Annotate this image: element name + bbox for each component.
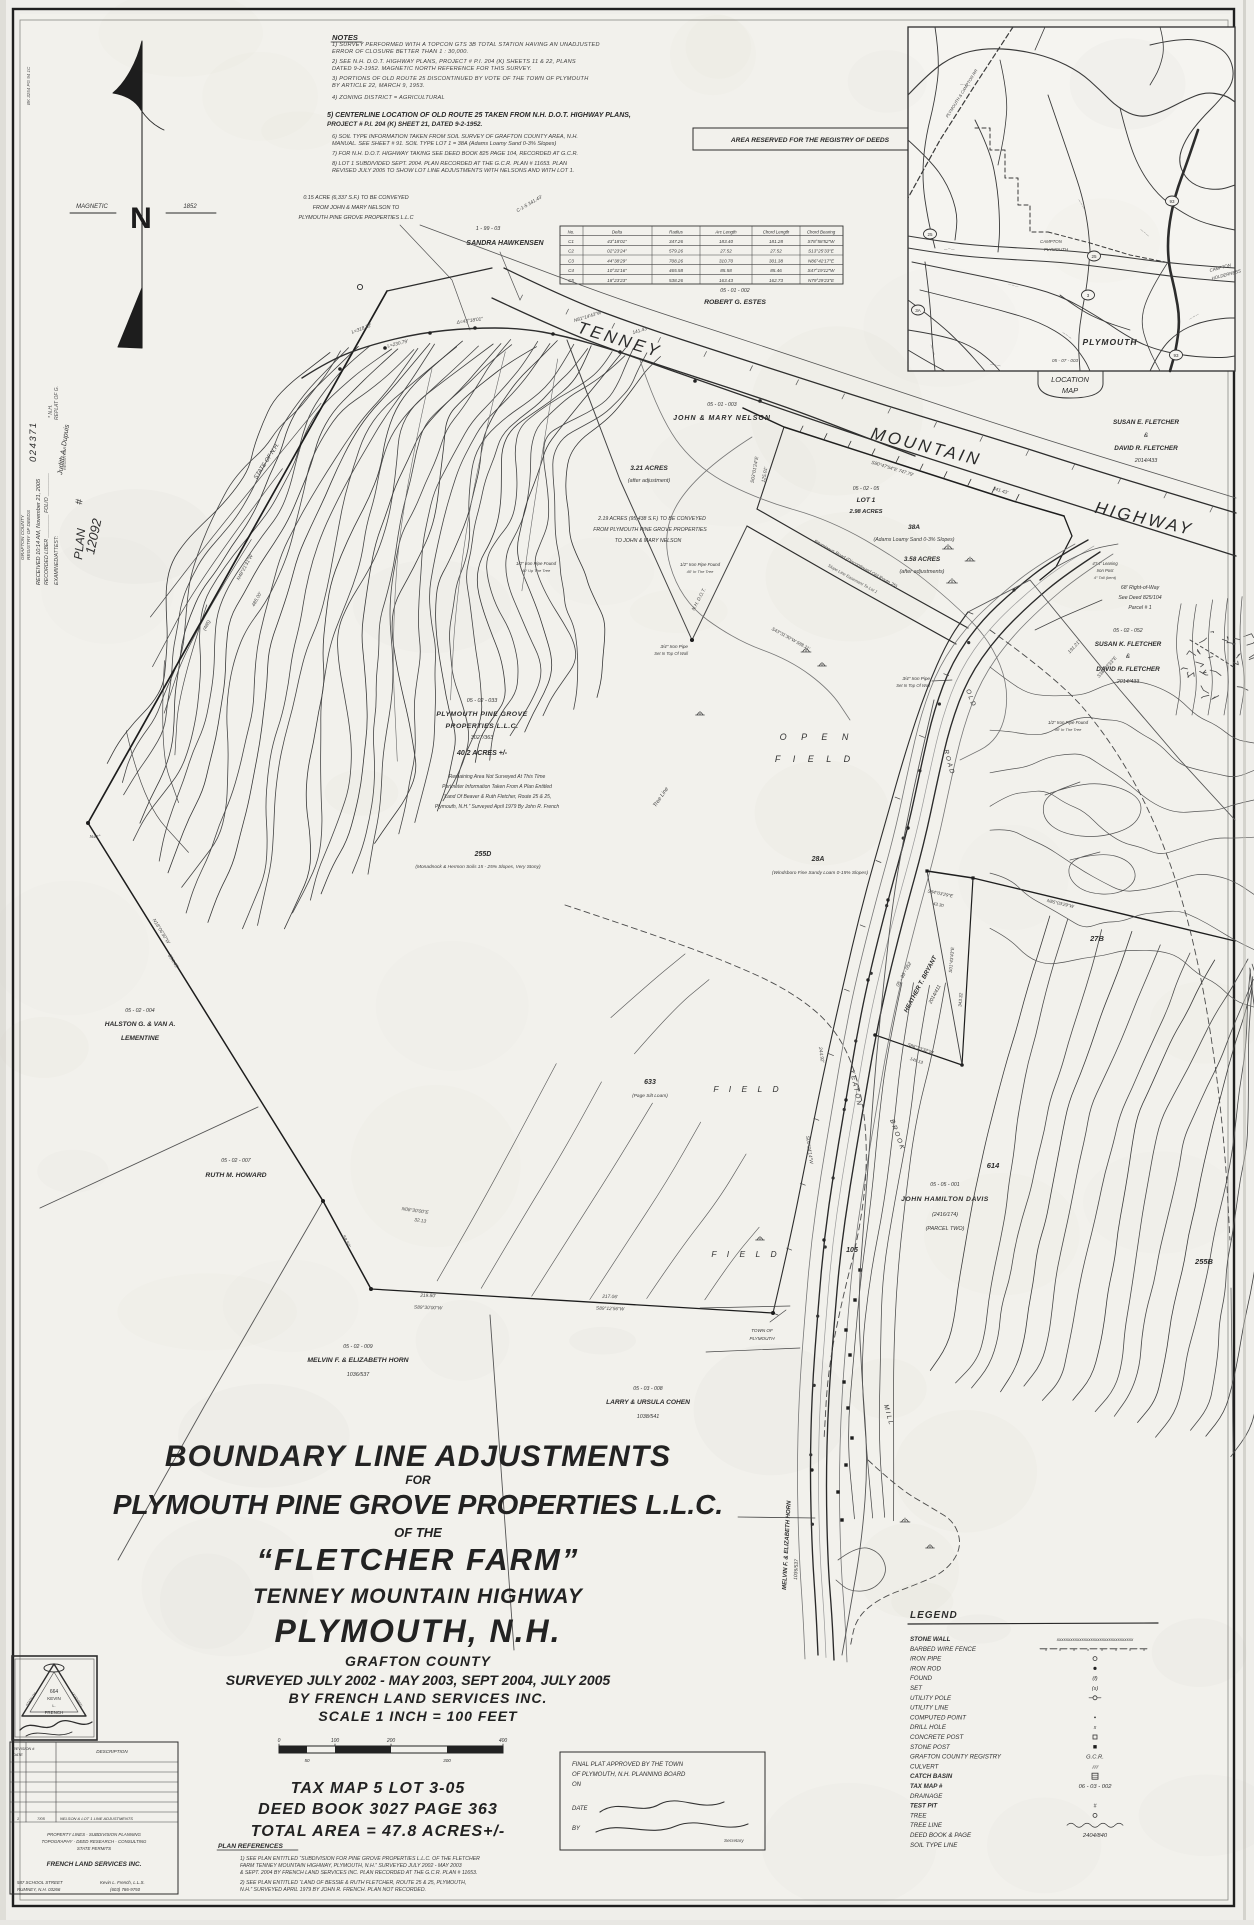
svg-text:DAVID R. FLETCHER: DAVID R. FLETCHER — [1114, 445, 1178, 452]
svg-text:(Windsboro Fine Sandy Loam 0-1: (Windsboro Fine Sandy Loam 0-15% Slopes) — [772, 870, 869, 876]
svg-text:Radius: Radius — [669, 230, 683, 235]
svg-text:3/4″ Iron Pipe: 3/4″ Iron Pipe — [660, 644, 688, 649]
svg-text:8) LOT 1 SUBDIVIDED SEPT. 2004: 8) LOT 1 SUBDIVIDED SEPT. 2004. PLAN REC… — [332, 161, 568, 167]
svg-text:05 - 07 - 003: 05 - 07 - 003 — [1052, 358, 1078, 363]
svg-text:&: & — [1126, 653, 1130, 660]
svg-text:301.38: 301.38 — [769, 258, 783, 263]
svg-text:DATE: DATE — [13, 1753, 23, 1757]
svg-text:GRAFTON COUNTY: GRAFTON COUNTY — [20, 514, 26, 560]
svg-text:SANDRA HAWKENSEN: SANDRA HAWKENSEN — [466, 240, 544, 247]
svg-text:3027/363: 3027/363 — [471, 735, 493, 741]
svg-text:05 - 01 - 002: 05 - 01 - 002 — [720, 288, 750, 294]
svg-text:REVISION #: REVISION # — [13, 1747, 35, 1751]
svg-text:3) PORTIONS OF OLD ROUTE 25 DI: 3) PORTIONS OF OLD ROUTE 25 DISCONTINUED… — [332, 76, 589, 82]
svg-text:L.: L. — [52, 1703, 55, 1708]
svg-text:7/05: 7/05 — [37, 1816, 46, 1821]
svg-text:N.H.” SURVEYED APRIL 1979 BY J: N.H.” SURVEYED APRIL 1979 BY JOHN R. FRE… — [240, 1887, 426, 1893]
svg-text:TOPOGRAPHY · DEED RESEARCH · C: TOPOGRAPHY · DEED RESEARCH · CONSULTING — [42, 1839, 147, 1844]
svg-text:219.80′: 219.80′ — [419, 1293, 437, 1300]
svg-text:LARRY & URSULA COHEN: LARRY & URSULA COHEN — [606, 1399, 690, 1406]
svg-text:Plymouth, N.H.” Surveyed April: Plymouth, N.H.” Surveyed April 1979 By J… — [435, 804, 560, 810]
svg-text:0.15 ACRE (6,337 S.F.) TO BE C: 0.15 ACRE (6,337 S.F.) TO BE CONVEYED — [303, 195, 408, 201]
svg-text:RUTH M. HOWARD: RUTH M. HOWARD — [205, 1172, 266, 1179]
svg-text:1/2″ Iron Pipe Found: 1/2″ Iron Pipe Found — [680, 562, 721, 567]
svg-text:C2: C2 — [568, 249, 574, 254]
svg-text:1: 1 — [17, 1816, 19, 1821]
svg-text:SURVEYED JULY 2002 - MAY 2003,: SURVEYED JULY 2002 - MAY 2003, SEPT 2004… — [226, 1672, 611, 1688]
svg-text:REPLAT OF G.: REPLAT OF G. — [54, 386, 60, 420]
svg-text:Chord Length: Chord Length — [763, 230, 790, 235]
svg-text:BY ARTICLE 22, MARCH 9, 1953.: BY ARTICLE 22, MARCH 9, 1953. — [332, 83, 425, 89]
svg-text:FRENCH LAND SERVICES INC.: FRENCH LAND SERVICES INC. — [47, 1861, 142, 1868]
svg-text:1036/537: 1036/537 — [347, 1372, 370, 1378]
svg-text:PLYMOUTH PINE GROVE: PLYMOUTH PINE GROVE — [436, 711, 527, 718]
svg-text:FOUND: FOUND — [910, 1675, 933, 1682]
svg-text:3/4″ Iron Pipe: 3/4″ Iron Pipe — [902, 676, 930, 681]
svg-text:PLYMOUTH: PLYMOUTH — [749, 1336, 775, 1341]
svg-text:STONE POST: STONE POST — [910, 1744, 951, 1751]
svg-text:05 - 02 - 009: 05 - 02 - 009 — [343, 1344, 373, 1350]
svg-text:GRAFTON COUNTY: GRAFTON COUNTY — [345, 1653, 492, 1669]
svg-text:DESCRIPTION: DESCRIPTION — [96, 1749, 128, 1754]
svg-text:614: 614 — [987, 1161, 1000, 1170]
svg-text:PLYMOUTH, N.H.: PLYMOUTH, N.H. — [275, 1613, 562, 1649]
svg-text:CONCRETE POST: CONCRETE POST — [910, 1734, 965, 1741]
svg-text:PLYMOUTH PINE GROVE PROPERTIES: PLYMOUTH PINE GROVE PROPERTIES L.L.C. — [113, 1489, 723, 1520]
svg-text:1/2″ Iron Pipe Found: 1/2″ Iron Pipe Found — [1048, 720, 1089, 725]
svg-text:300: 300 — [443, 1758, 451, 1763]
svg-text:DATED 9-2-1952. MAGNETIC NORTH: DATED 9-2-1952. MAGNETIC NORTH REFERENCE… — [332, 66, 532, 72]
svg-text:200: 200 — [386, 1738, 396, 1744]
svg-text:F I E L D: F I E L D — [711, 1249, 780, 1259]
svg-text:— ─ —: — ─ — — [943, 247, 955, 251]
svg-text:024371: 024371 — [28, 421, 39, 462]
svg-text:FROM JOHN & MARY NELSON TO: FROM JOHN & MARY NELSON TO — [313, 205, 400, 211]
svg-text:REVISED JULY 2005 TO SHOW LOT: REVISED JULY 2005 TO SHOW LOT LINE ADJUS… — [332, 168, 574, 174]
svg-text:FARM TENNEY MOUNTAIN HIGHWAY,: FARM TENNEY MOUNTAIN HIGHWAY, PLYMOUTH, … — [240, 1863, 462, 1869]
svg-text:664: 664 — [50, 1689, 59, 1695]
svg-text:HALSTON G. & VAN A.: HALSTON G. & VAN A. — [105, 1021, 176, 1028]
svg-text:RECEIVED 10:14 AM, November 21: RECEIVED 10:14 AM, November 21, 2005 — [36, 478, 42, 585]
svg-text:6) SOIL TYPE INFORMATION TAKEN: 6) SOIL TYPE INFORMATION TAKEN FROM SOIL… — [332, 134, 578, 140]
svg-text:PLAN REFERENCES: PLAN REFERENCES — [218, 1843, 283, 1850]
svg-text:ERROR OF CLOSURE BETTER THAN 1: ERROR OF CLOSURE BETTER THAN 1 : 30,000. — [332, 49, 468, 55]
svg-text:(603) 786-9750: (603) 786-9750 — [110, 1887, 141, 1892]
svg-text:“Land Of Beaver & Ruth Fletche: “Land Of Beaver & Ruth Fletcher, Route 2… — [443, 794, 552, 800]
svg-text:85.58: 85.58 — [720, 268, 732, 273]
svg-text:1036/537: 1036/537 — [793, 1559, 800, 1580]
svg-text:162.73: 162.73 — [769, 278, 783, 283]
svg-text:&: & — [1144, 432, 1148, 439]
svg-text:GRAFTON COUNTY REGISTRY: GRAFTON COUNTY REGISTRY — [910, 1754, 1002, 1761]
svg-text:25: 25 — [927, 232, 933, 237]
svg-text:05 - 02 - 052: 05 - 02 - 052 — [1113, 628, 1143, 634]
svg-text:No.: No. — [568, 230, 575, 235]
svg-text:MAP: MAP — [1062, 386, 1078, 395]
svg-text:85.46: 85.46 — [770, 268, 782, 273]
svg-text:05 - 02 - 033: 05 - 02 - 033 — [467, 698, 498, 704]
svg-text:Chord Bearing: Chord Bearing — [807, 230, 836, 235]
svg-text:1038/541: 1038/541 — [637, 1414, 659, 1420]
svg-text:2014/433: 2014/433 — [1116, 679, 1139, 685]
svg-text:310.70: 310.70 — [719, 258, 733, 263]
svg-text:S13°25′33″E: S13°25′33″E — [808, 249, 835, 254]
svg-text:KEVIN: KEVIN — [47, 1696, 61, 1701]
svg-text:50: 50 — [304, 1758, 310, 1763]
svg-text:OF THE: OF THE — [394, 1525, 442, 1540]
svg-text:& SEPT. 2004 BY FRENCH LAND SE: & SEPT. 2004 BY FRENCH LAND SERVICES INC… — [240, 1870, 477, 1876]
svg-text:AREA RESERVED FOR THE REGISTRY: AREA RESERVED FOR THE REGISTRY OF DEEDS — [730, 137, 890, 144]
svg-text:05 - 01 - 003: 05 - 01 - 003 — [707, 402, 737, 408]
svg-text:PLYMOUTH PINE GROVE PROPERTIES: PLYMOUTH PINE GROVE PROPERTIES L.L.C — [298, 215, 413, 221]
svg-text:MAGNETIC: MAGNETIC — [76, 204, 108, 210]
svg-text:02°23′24″: 02°23′24″ — [607, 249, 627, 254]
svg-text:27.52: 27.52 — [719, 249, 732, 254]
svg-text:x: x — [1093, 1725, 1097, 1731]
svg-text:Set In Top Of Wall: Set In Top Of Wall — [654, 651, 689, 656]
svg-text:FRENCH: FRENCH — [45, 1710, 64, 1715]
svg-text:N: N — [130, 202, 152, 235]
svg-text:181.28: 181.28 — [769, 239, 783, 244]
svg-text:DRAINAGE: DRAINAGE — [910, 1793, 943, 1800]
svg-text:IRON PIPE: IRON PIPE — [910, 1656, 942, 1663]
svg-text:STONE WALL: STONE WALL — [910, 1636, 951, 1643]
svg-text:C1: C1 — [568, 239, 574, 244]
svg-text:MELVIN F. & ELIZABETH HORN: MELVIN F. & ELIZABETH HORN — [307, 1357, 409, 1364]
svg-text:REGISTRAR: REGISTRAR — [62, 447, 67, 470]
svg-text:NELSON & LOT 1 LINE ADJUSTMENT: NELSON & LOT 1 LINE ADJUSTMENTS — [60, 1816, 133, 1821]
svg-text:400: 400 — [499, 1738, 508, 1744]
svg-text:10°31′16″: 10°31′16″ — [607, 268, 627, 273]
svg-text:1) SURVEY PERFORMED WITH A TOP: 1) SURVEY PERFORMED WITH A TOPCON GTS 3B… — [332, 42, 600, 48]
svg-text:538.26: 538.26 — [669, 278, 683, 283]
svg-text:(Page Silt Loam): (Page Silt Loam) — [632, 1093, 668, 1099]
svg-text:LOT 1: LOT 1 — [857, 497, 876, 504]
svg-text:COMPUTED POINT: COMPUTED POINT — [910, 1714, 967, 1721]
svg-text:ON: ON — [572, 1782, 582, 1788]
svg-text:CULVERT: CULVERT — [910, 1763, 940, 1770]
svg-text:UTILITY POLE: UTILITY POLE — [910, 1695, 952, 1702]
svg-text:BARBED WIRE FENCE: BARBED WIRE FENCE — [910, 1646, 977, 1653]
svg-text:FROM PLYMOUTH PINE GROVE PROPE: FROM PLYMOUTH PINE GROVE PROPERTIES — [593, 527, 707, 533]
svg-text:217.06′: 217.06′ — [601, 1294, 619, 1301]
svg-text:587 SCHOOL STREET: 587 SCHOOL STREET — [17, 1880, 63, 1885]
svg-text:ROBERT G. ESTES: ROBERT G. ESTES — [704, 299, 766, 306]
svg-text:163.43: 163.43 — [719, 278, 733, 283]
svg-text:18°23′23″: 18°23′23″ — [607, 278, 627, 283]
svg-text:N79°29′23″E: N79°29′23″E — [808, 278, 835, 283]
svg-text:DRILL HOLE: DRILL HOLE — [910, 1724, 947, 1731]
svg-text:1852: 1852 — [183, 204, 197, 210]
svg-text:06 - 03 - 002: 06 - 03 - 002 — [1079, 1784, 1113, 1790]
svg-text:NOTES: NOTES — [332, 33, 358, 42]
svg-text:TAX MAP 5 LOT 3-05: TAX MAP 5 LOT 3-05 — [291, 1780, 466, 1797]
svg-text:G.C.R.: G.C.R. — [1086, 1755, 1104, 1761]
svg-text:Arc Length: Arc Length — [714, 230, 737, 235]
svg-text:S78°58′52″W: S78°58′52″W — [807, 239, 835, 244]
svg-text:N42°: N42° — [90, 834, 101, 840]
svg-text:7) FOR N.H. D.O.T. HIGHWAY TAK: 7) FOR N.H. D.O.T. HIGHWAY TAKING SEE DE… — [332, 151, 578, 157]
svg-text:0: 0 — [278, 1738, 281, 1744]
svg-text:Set In Top Of Wall: Set In Top Of Wall — [896, 683, 931, 688]
svg-text:PROPERTY LINES · SUBDIVISION P: PROPERTY LINES · SUBDIVISION PLANNING — [47, 1832, 141, 1837]
svg-text:RUMNEY, N.H. 03266: RUMNEY, N.H. 03266 — [17, 1887, 61, 1892]
svg-text:MANUAL. SEE SHEET # 91. SOIL T: MANUAL. SEE SHEET # 91. SOIL TYPE LOT 1 … — [332, 141, 556, 147]
svg-text:40′ In The Tree: 40′ In The Tree — [687, 569, 714, 574]
svg-text:05 - 02 - 007: 05 - 02 - 007 — [221, 1158, 252, 1164]
svg-text:Parcel # 1: Parcel # 1 — [1128, 605, 1151, 611]
svg-text:SUSAN K. FLETCHER: SUSAN K. FLETCHER — [1095, 641, 1162, 648]
svg-text:708.26: 708.26 — [669, 258, 683, 263]
svg-text:IRON ROD: IRON ROD — [910, 1665, 941, 1672]
svg-text:S89°12'56″W: S89°12'56″W — [596, 1306, 625, 1313]
svg-text:4) ZONING DISTRICT = AGRICULTU: 4) ZONING DISTRICT = AGRICULTURAL — [332, 95, 445, 101]
svg-text:O P E N: O P E N — [780, 732, 855, 742]
svg-text:Remaining Area Not Surveyed At: Remaining Area Not Surveyed At This Time — [449, 774, 546, 780]
svg-text:05 - 03 - 008: 05 - 03 - 008 — [633, 1386, 663, 1392]
svg-text:LOCATION: LOCATION — [1051, 375, 1089, 384]
svg-text:C4: C4 — [568, 268, 574, 273]
svg-text:OF PLYMOUTH, N.H. PLANNING BOA: OF PLYMOUTH, N.H. PLANNING BOARD — [572, 1772, 686, 1778]
svg-text:CATCH BASIN: CATCH BASIN — [910, 1773, 953, 1780]
svg-text:Perimeter Information Taken Fr: Perimeter Information Taken From A Plan … — [442, 784, 552, 790]
svg-text:DATE: DATE — [572, 1806, 589, 1812]
svg-text:SET: SET — [910, 1685, 923, 1692]
svg-text:27B: 27B — [1089, 934, 1104, 943]
svg-text:347.26: 347.26 — [669, 239, 683, 244]
svg-text:Delta: Delta — [612, 230, 623, 235]
svg-text:05 - 02 - 004: 05 - 02 - 004 — [125, 1008, 155, 1014]
svg-text:BY: BY — [572, 1826, 581, 1832]
svg-text:Kevin L. French, L.L.S.: Kevin L. French, L.L.S. — [100, 1880, 145, 1885]
svg-text:TAX MAP #: TAX MAP # — [910, 1783, 943, 1790]
svg-text:xxxxxxxxxxxxxxxxxxxxxxxxxxxxxx: xxxxxxxxxxxxxxxxxxxxxxxxxxxxxxxxxx — [1056, 1637, 1134, 1642]
svg-text:183.40: 183.40 — [719, 239, 733, 244]
svg-text:Secretary: Secretary — [724, 1838, 744, 1843]
svg-text:PLYMOUTH: PLYMOUTH — [1082, 337, 1137, 347]
svg-text:1) SEE PLAN ENTITLED “SUBDIVIS: 1) SEE PLAN ENTITLED “SUBDIVISION FOR PI… — [240, 1856, 480, 1862]
svg-text:UTILITY LINE: UTILITY LINE — [910, 1705, 949, 1712]
svg-text:PROPERTIES L.L.C.: PROPERTIES L.L.C. — [446, 723, 519, 730]
svg-text:1 - 99 - 03: 1 - 99 - 03 — [476, 226, 501, 232]
svg-text:40.2 ACRES +/-: 40.2 ACRES +/- — [456, 750, 508, 757]
svg-text:44°38′29″: 44°38′29″ — [607, 258, 627, 263]
svg-text:N86°42′17″E: N86°42′17″E — [808, 258, 835, 263]
svg-text:(f): (f) — [1092, 1676, 1097, 1682]
svg-text:⫽⫽⫽: ⫽⫽⫽ — [1091, 1764, 1099, 1769]
svg-text:BK 3254 PG 94 1C: BK 3254 PG 94 1C — [26, 66, 31, 105]
svg-text:FINAL PLAT APPROVED BY THE TOW: FINAL PLAT APPROVED BY THE TOWN — [572, 1762, 684, 1768]
svg-text:TOTAL AREA = 47.8 ACRES+/-: TOTAL AREA = 47.8 ACRES+/- — [251, 1823, 506, 1840]
svg-text:40′ In The Tree: 40′ In The Tree — [1055, 727, 1082, 732]
svg-text:579.26: 579.26 — [669, 249, 683, 254]
svg-text:S47°19′12″W: S47°19′12″W — [807, 268, 835, 273]
svg-text:2014/433: 2014/433 — [1134, 458, 1157, 464]
svg-text:255B: 255B — [1194, 1257, 1214, 1266]
svg-text:BY FRENCH LAND SERVICES INC.: BY FRENCH LAND SERVICES INC. — [289, 1690, 548, 1706]
svg-text:105: 105 — [846, 1247, 858, 1254]
svg-text:2) SEE N.H. D.O.T. HIGHWAY PLA: 2) SEE N.H. D.O.T. HIGHWAY PLANS, PROJEC… — [331, 59, 576, 65]
svg-text:C3: C3 — [568, 258, 574, 263]
svg-text:SCALE 1 INCH = 100 FEET: SCALE 1 INCH = 100 FEET — [318, 1708, 518, 1724]
svg-text:93: 93 — [1169, 199, 1175, 204]
svg-text:2) SEE PLAN ENTITLED “LAND OF: 2) SEE PLAN ENTITLED “LAND OF BESSIE & R… — [239, 1880, 466, 1886]
svg-text:27.52: 27.52 — [769, 249, 782, 254]
svg-text:DEED BOOK 3027 PAGE 363: DEED BOOK 3027 PAGE 363 — [258, 1801, 498, 1818]
svg-text:REGISTRY OF DEEDS: REGISTRY OF DEEDS — [26, 509, 32, 560]
svg-text:STATE PERMITS: STATE PERMITS — [77, 1846, 111, 1851]
svg-text:43°18′01″: 43°18′01″ — [607, 239, 627, 244]
svg-text:465.58: 465.58 — [669, 268, 683, 273]
svg-text:100: 100 — [331, 1738, 340, 1744]
svg-text:5) CENTERLINE LOCATION OF OLD: 5) CENTERLINE LOCATION OF OLD ROUTE 25 T… — [327, 112, 631, 119]
svg-text:633: 633 — [644, 1079, 656, 1086]
svg-text:SUSAN E. FLETCHER: SUSAN E. FLETCHER — [1113, 419, 1179, 426]
svg-text:93: 93 — [1173, 353, 1179, 358]
svg-text:(Monadnock & Hermon Soils 15 -: (Monadnock & Hermon Soils 15 - 25% Slope… — [415, 864, 541, 870]
svg-text:FOR: FOR — [405, 1473, 431, 1487]
svg-text:255D: 255D — [474, 851, 492, 858]
svg-text:F I E L D: F I E L D — [713, 1084, 782, 1094]
svg-text:(s): (s) — [1092, 1686, 1099, 1692]
svg-text:TOWN OF: TOWN OF — [751, 1328, 774, 1333]
svg-text:PROJECT # P.I. 204 (K) SHEET 2: PROJECT # P.I. 204 (K) SHEET 21, DATED 9… — [327, 121, 483, 128]
svg-text:LEMENTINE: LEMENTINE — [121, 1035, 160, 1042]
